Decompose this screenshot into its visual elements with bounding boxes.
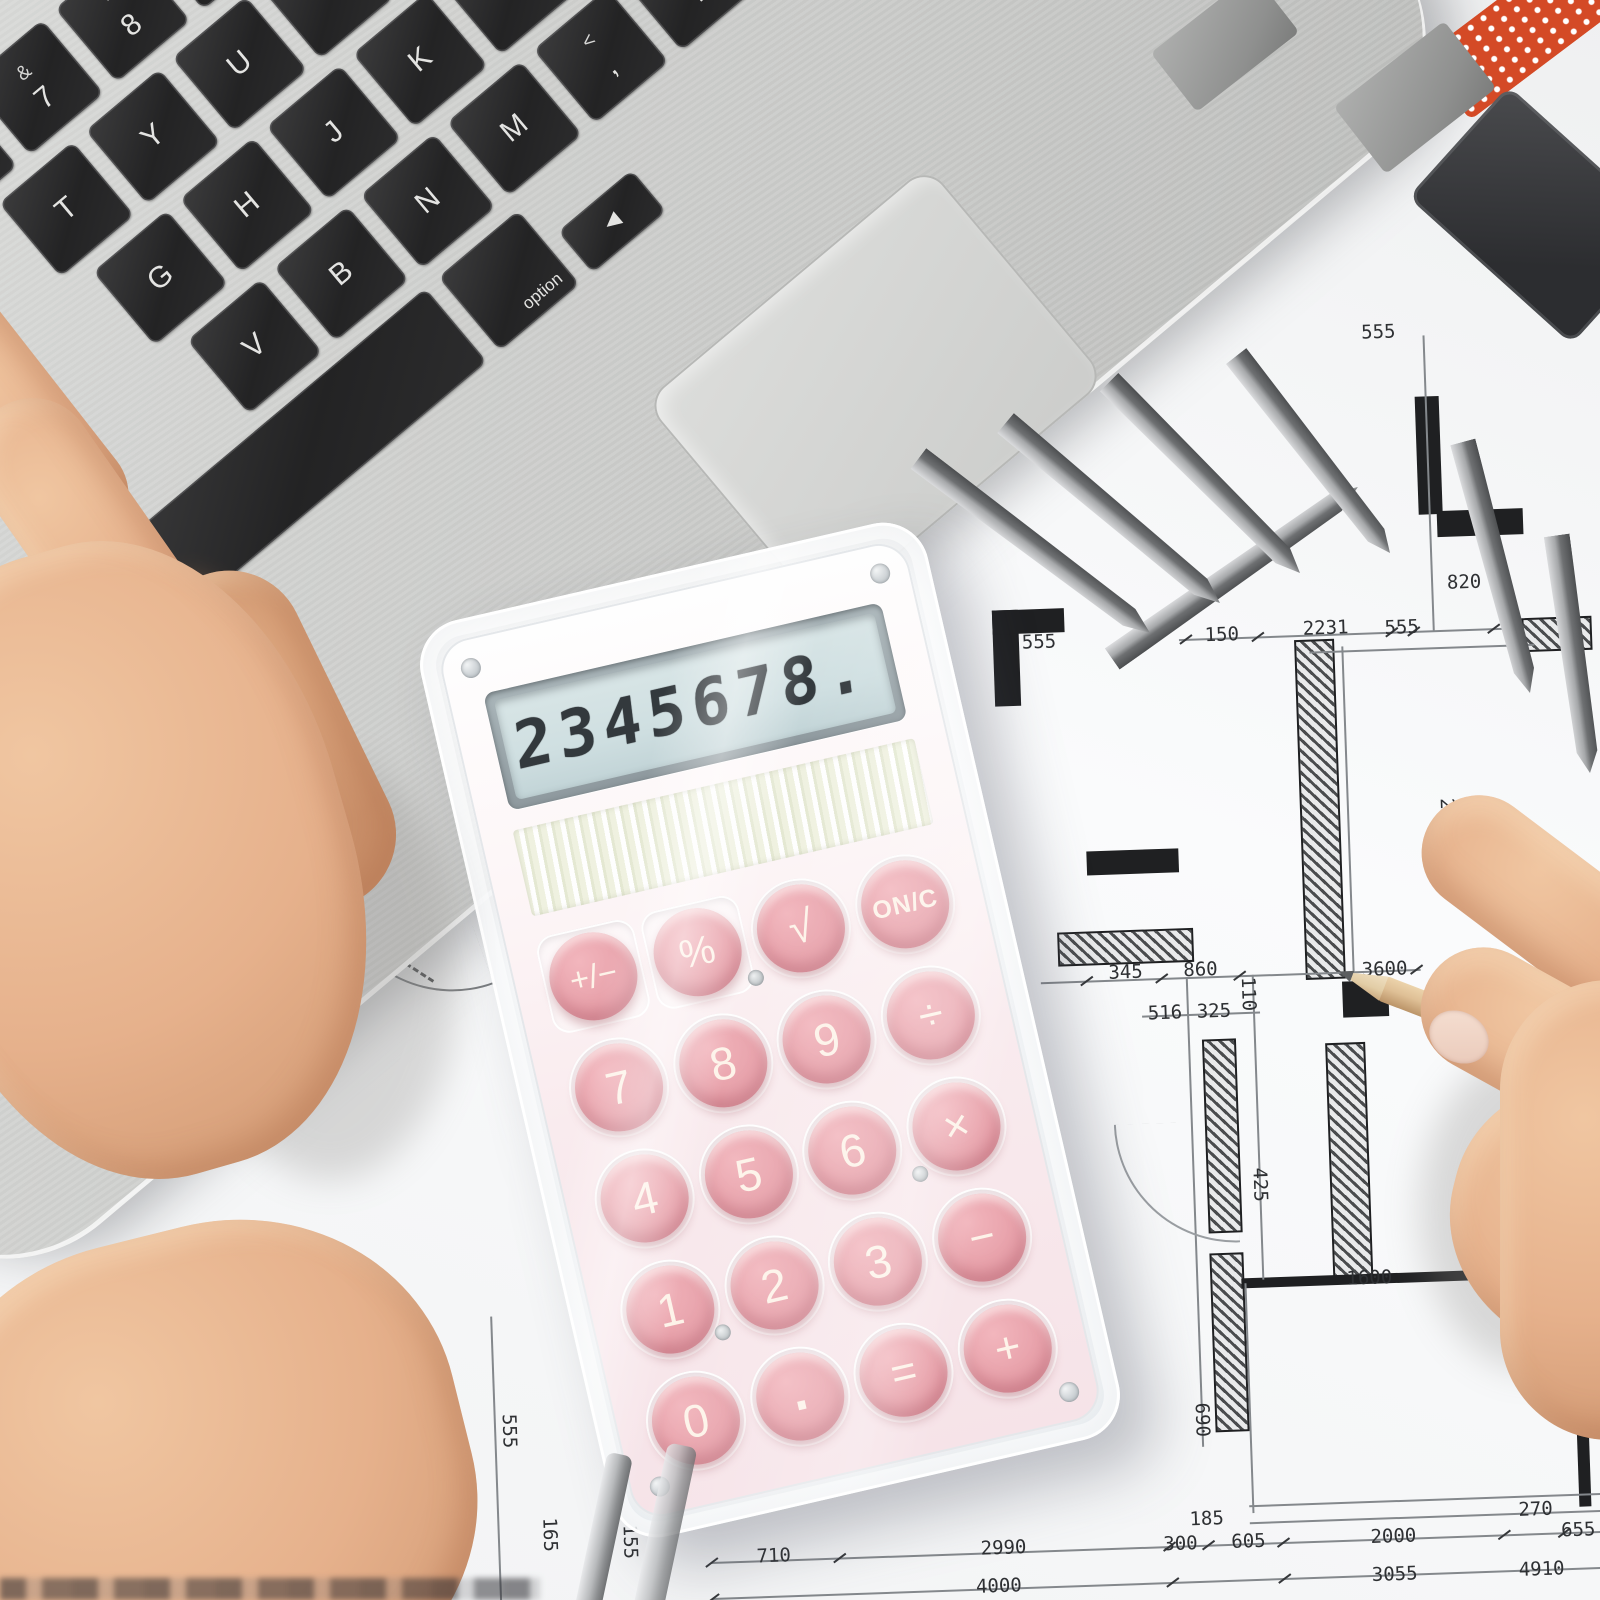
dimension-label: 300 bbox=[1163, 1532, 1198, 1555]
calc-button-=[interactable]: = bbox=[851, 1320, 957, 1426]
dimension-label: 516 bbox=[1147, 1001, 1182, 1024]
dimension-line bbox=[490, 1317, 502, 1600]
dimension-label: 860 bbox=[1183, 958, 1218, 981]
calculator-keypad: +/−%√ON/C789÷456×123−0.=+ bbox=[530, 836, 1072, 1489]
key-well: 7 bbox=[559, 1027, 679, 1147]
dimension-label: 555 bbox=[1384, 616, 1419, 639]
calc-button-−[interactable]: − bbox=[929, 1185, 1035, 1291]
dimension-label: 555 bbox=[498, 1413, 521, 1448]
calc-button-7[interactable]: 7 bbox=[566, 1035, 672, 1141]
key-well: 8 bbox=[663, 1003, 783, 1123]
calc-button-√[interactable]: √ bbox=[748, 876, 854, 982]
key-well: 9 bbox=[767, 979, 887, 1099]
calc-button-+[interactable]: + bbox=[955, 1296, 1061, 1402]
key-well: + bbox=[948, 1289, 1068, 1409]
dimension-label: 150 bbox=[1204, 623, 1239, 646]
calc-button-%[interactable]: % bbox=[645, 900, 751, 1006]
dimension-label: 270 bbox=[1518, 1498, 1553, 1521]
dimension-label: 4000 bbox=[976, 1574, 1023, 1598]
calc-button-3[interactable]: 3 bbox=[825, 1209, 931, 1315]
bottom-smudge bbox=[0, 1578, 540, 1600]
dimension-label: 2990 bbox=[980, 1536, 1027, 1560]
dimension-line bbox=[712, 1566, 1600, 1600]
dimension-line bbox=[1252, 975, 1265, 1280]
hand-edge bbox=[1500, 980, 1600, 1440]
dimension-label: 425 bbox=[1248, 1167, 1271, 1202]
dimension-label: 165 bbox=[538, 1517, 561, 1552]
dimension-label: 555 bbox=[1021, 630, 1056, 653]
dimension-label: 110 bbox=[1237, 976, 1260, 1011]
key-well: . bbox=[740, 1337, 860, 1457]
dimension-label: 655 bbox=[1561, 1518, 1596, 1541]
calc-button-4[interactable]: 4 bbox=[592, 1146, 698, 1252]
calc-button-1[interactable]: 1 bbox=[618, 1257, 724, 1363]
calc-button-÷[interactable]: ÷ bbox=[878, 963, 984, 1069]
key-well: 4 bbox=[585, 1139, 705, 1259]
key-well: 1 bbox=[610, 1250, 730, 1370]
dimension-label: 710 bbox=[756, 1544, 791, 1567]
calc-button-0[interactable]: 0 bbox=[643, 1368, 749, 1474]
blueprint-wall bbox=[1086, 848, 1179, 875]
dimension-label: 185 bbox=[1189, 1507, 1224, 1530]
calc-button-×[interactable]: × bbox=[904, 1074, 1010, 1180]
calc-button-9[interactable]: 9 bbox=[774, 987, 880, 1093]
dimension-label: 1600 bbox=[1346, 1266, 1393, 1290]
dimension-label: 820 bbox=[1447, 571, 1482, 594]
calc-button-+/−[interactable]: +/− bbox=[541, 924, 647, 1030]
key-well: ÷ bbox=[871, 955, 991, 1075]
key-well: ON/C bbox=[845, 844, 965, 964]
dimension-label: 345 bbox=[1108, 961, 1143, 984]
blueprint-wall bbox=[1294, 639, 1346, 980]
dimension-label: 690 bbox=[1191, 1402, 1214, 1437]
calc-button-.[interactable]: . bbox=[747, 1344, 853, 1450]
key-well: 6 bbox=[793, 1091, 913, 1211]
door-arc bbox=[1114, 1120, 1240, 1246]
dimension-label: 325 bbox=[1196, 1000, 1231, 1023]
key-◀[interactable]: ◀ bbox=[558, 170, 666, 273]
dimension-line bbox=[711, 1530, 1600, 1564]
dimension-label: 2231 bbox=[1302, 616, 1349, 640]
key-well: 3 bbox=[818, 1202, 938, 1322]
calc-button-2[interactable]: 2 bbox=[721, 1233, 827, 1339]
dimension-label: 3055 bbox=[1371, 1562, 1418, 1586]
dimension-label: 4910 bbox=[1518, 1557, 1565, 1581]
calc-button-8[interactable]: 8 bbox=[670, 1011, 776, 1117]
dimension-label: 605 bbox=[1231, 1530, 1266, 1553]
calc-button-5[interactable]: 5 bbox=[696, 1122, 802, 1228]
key-well: = bbox=[844, 1313, 964, 1433]
key-well: 2 bbox=[714, 1226, 834, 1346]
dimension-label: 2000 bbox=[1370, 1524, 1417, 1548]
key-well: 5 bbox=[689, 1115, 809, 1235]
dimension-label: 555 bbox=[1361, 320, 1396, 343]
calc-button-ON/C[interactable]: ON/C bbox=[852, 852, 958, 958]
desk-scene: 7102990185300605200027065540003055491034… bbox=[0, 0, 1600, 1600]
key-well: % bbox=[637, 892, 757, 1012]
key-well: 0 bbox=[636, 1361, 756, 1481]
blueprint-wall bbox=[1325, 1042, 1373, 1279]
key-well: +/− bbox=[533, 916, 653, 1036]
calc-button-6[interactable]: 6 bbox=[800, 1098, 906, 1204]
key-well: − bbox=[922, 1178, 1042, 1298]
